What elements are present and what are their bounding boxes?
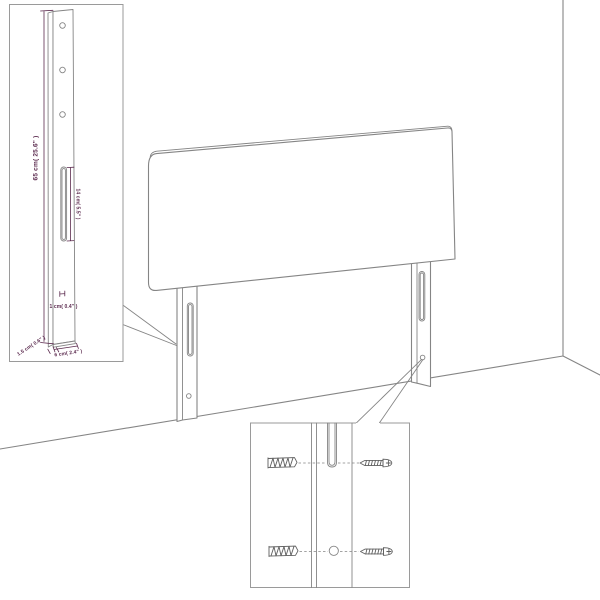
panel-front-face (149, 128, 456, 291)
callout-line-inset2-a (357, 359, 422, 423)
slot-length-label: 14 cm( 5.5" ) (75, 189, 81, 220)
screw-top (360, 459, 392, 467)
slot-width-label: 1 cm( 0.4" ) (49, 304, 77, 310)
inset-mounting-hardware (251, 423, 410, 588)
diagram-canvas: 65 cm( 25.6" ) 14 cm( 5.5" ) 1 cm( 0.4" … (0, 0, 600, 600)
callout-line-inset1-b (123, 325, 177, 346)
headboard-assembly-diagram: 65 cm( 25.6" ) 14 cm( 5.5" ) 1 cm( 0.4" … (0, 0, 600, 600)
screw-bottom (361, 548, 393, 556)
floor-line-right (563, 356, 600, 375)
detail-leg-front-face (53, 10, 75, 345)
right-leg-body (412, 248, 431, 387)
callout-line-inset1-a (123, 305, 176, 344)
headboard-right-leg (412, 248, 431, 387)
headboard-left-leg (177, 276, 197, 422)
inset-leg-dimensions: 65 cm( 25.6" ) 14 cm( 5.5" ) 1 cm( 0.4" … (10, 5, 124, 362)
detail-leg-side-face (48, 12, 53, 348)
callout-line-inset2-b (380, 360, 423, 423)
leg-height-label: 65 cm( 25.6" ) (33, 136, 40, 181)
headboard-panel (149, 126, 456, 290)
callout-lines (123, 305, 423, 423)
inset2-background (251, 423, 410, 588)
